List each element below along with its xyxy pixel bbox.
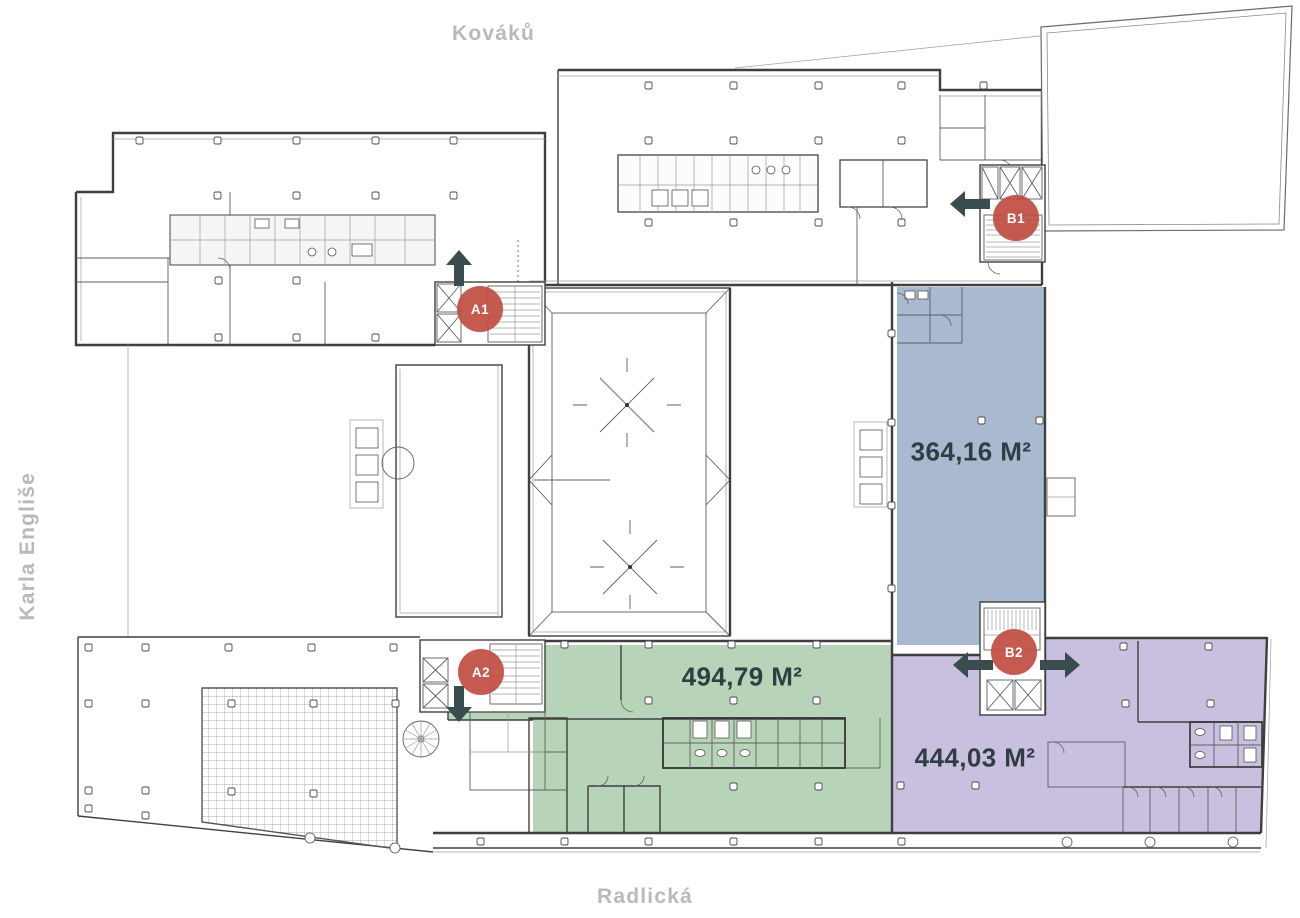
roof-x-mark	[573, 358, 684, 609]
spiral-stair	[403, 721, 439, 757]
unit-green-area-label: 494,79 M²	[682, 662, 803, 693]
marker-b1-label: B1	[1007, 211, 1025, 226]
floorplan-stage: Kováků Karla Engliše Radlická 364,16 M² …	[0, 0, 1300, 918]
left-hall	[128, 345, 887, 637]
marker-a2[interactable]: A2	[458, 649, 504, 695]
terrace	[78, 637, 433, 853]
wing-b	[529, 36, 1042, 285]
floorplan-page: { "streets": { "top": "Kováků", "left": …	[0, 0, 1300, 918]
bottom-corridor	[433, 833, 1261, 852]
unit-blue-area-label: 364,16 M²	[911, 437, 1032, 468]
marker-a2-label: A2	[472, 665, 490, 680]
street-label-bottom: Radlická	[597, 885, 693, 909]
adjacent-building-outline	[1041, 6, 1292, 231]
street-label-left: Karla Engliše	[16, 472, 40, 621]
floorplan-drawing	[0, 0, 1300, 918]
unit-purple-area-label: 444,03 M²	[915, 743, 1036, 774]
marker-b2-label: B2	[1005, 645, 1023, 660]
marker-a1-label: A1	[471, 302, 489, 317]
marker-b2[interactable]: B2	[991, 629, 1037, 675]
street-label-top: Kováků	[452, 22, 535, 46]
unit-fills	[448, 287, 1267, 833]
marker-a1[interactable]: A1	[457, 286, 503, 332]
atrium-courtyard	[529, 288, 730, 636]
unit-purple-under-core[interactable]	[982, 715, 1045, 833]
marker-b1[interactable]: B1	[993, 195, 1039, 241]
